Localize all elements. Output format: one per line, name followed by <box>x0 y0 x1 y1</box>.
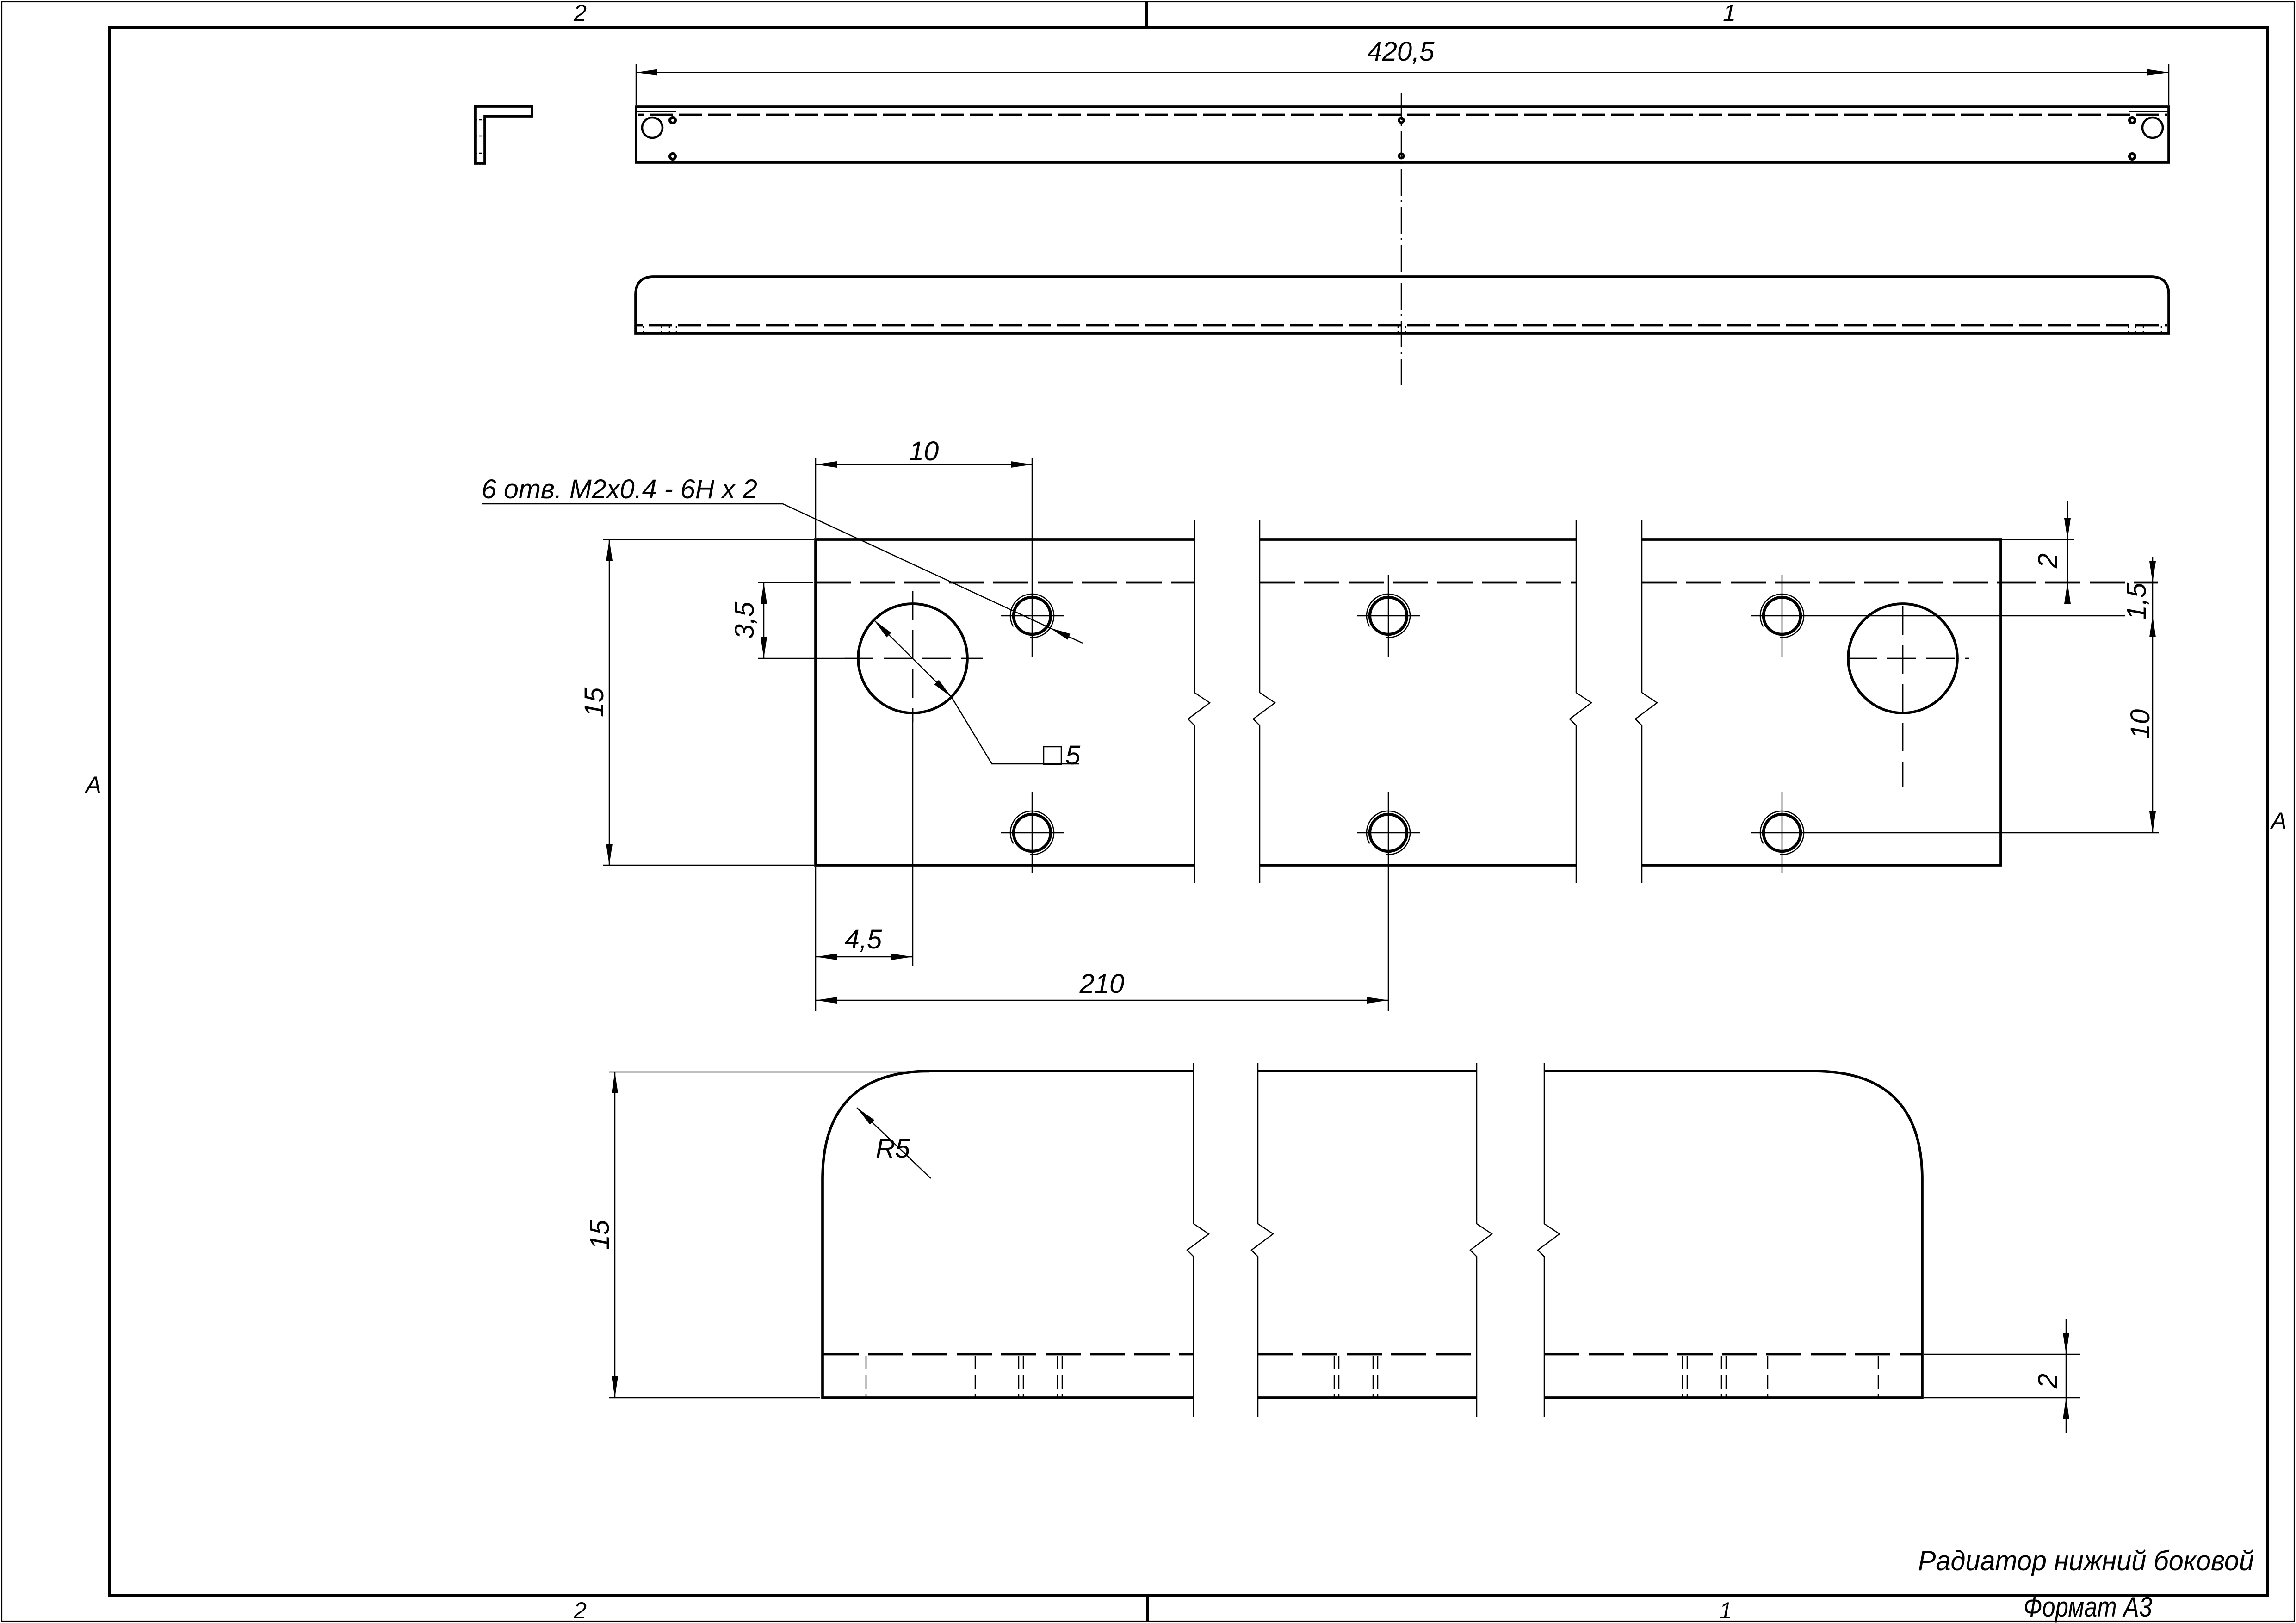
svg-text:1: 1 <box>1719 1598 1732 1623</box>
svg-text:A: A <box>84 772 101 798</box>
svg-text:2: 2 <box>2033 553 2063 569</box>
svg-text:10: 10 <box>2125 709 2155 739</box>
svg-text:Формат А3: Формат А3 <box>2024 1592 2152 1623</box>
svg-text:4,5: 4,5 <box>845 924 882 954</box>
svg-text:Радиатор нижний боковой: Радиатор нижний боковой <box>1918 1545 2254 1576</box>
svg-text:3,5: 3,5 <box>730 601 760 639</box>
svg-text:15: 15 <box>585 1220 615 1250</box>
svg-text:2: 2 <box>573 1598 587 1623</box>
svg-text:1: 1 <box>1723 0 1736 26</box>
svg-text:6 отв. М2х0.4 - 6Н х 2: 6 отв. М2х0.4 - 6Н х 2 <box>482 474 757 504</box>
svg-text:2: 2 <box>2033 1374 2063 1389</box>
svg-text:15: 15 <box>579 687 609 717</box>
svg-text:210: 210 <box>1079 969 1125 999</box>
svg-text:1,5: 1,5 <box>2122 582 2152 620</box>
svg-text:2: 2 <box>573 0 587 26</box>
svg-text:420,5: 420,5 <box>1367 37 1435 67</box>
svg-text:A: A <box>2270 808 2286 834</box>
svg-text:10: 10 <box>909 436 939 466</box>
svg-text:5: 5 <box>1065 740 1081 770</box>
svg-text:R5: R5 <box>876 1134 910 1164</box>
